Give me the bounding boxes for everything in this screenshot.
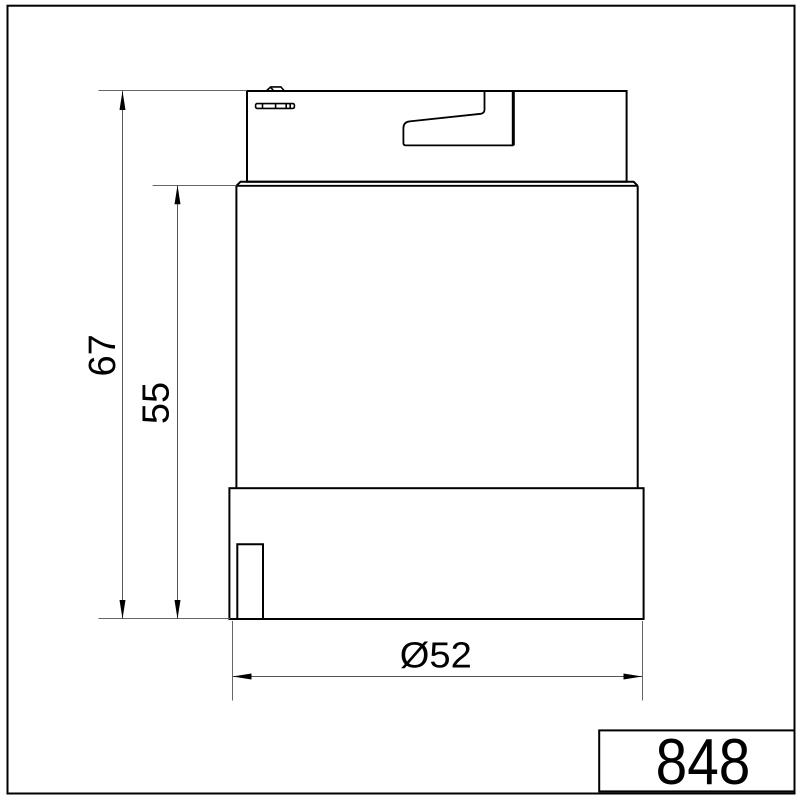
- svg-text:67: 67: [82, 334, 124, 376]
- svg-text:848: 848: [656, 726, 751, 798]
- svg-text:Ø52: Ø52: [400, 634, 472, 675]
- svg-text:55: 55: [136, 382, 178, 424]
